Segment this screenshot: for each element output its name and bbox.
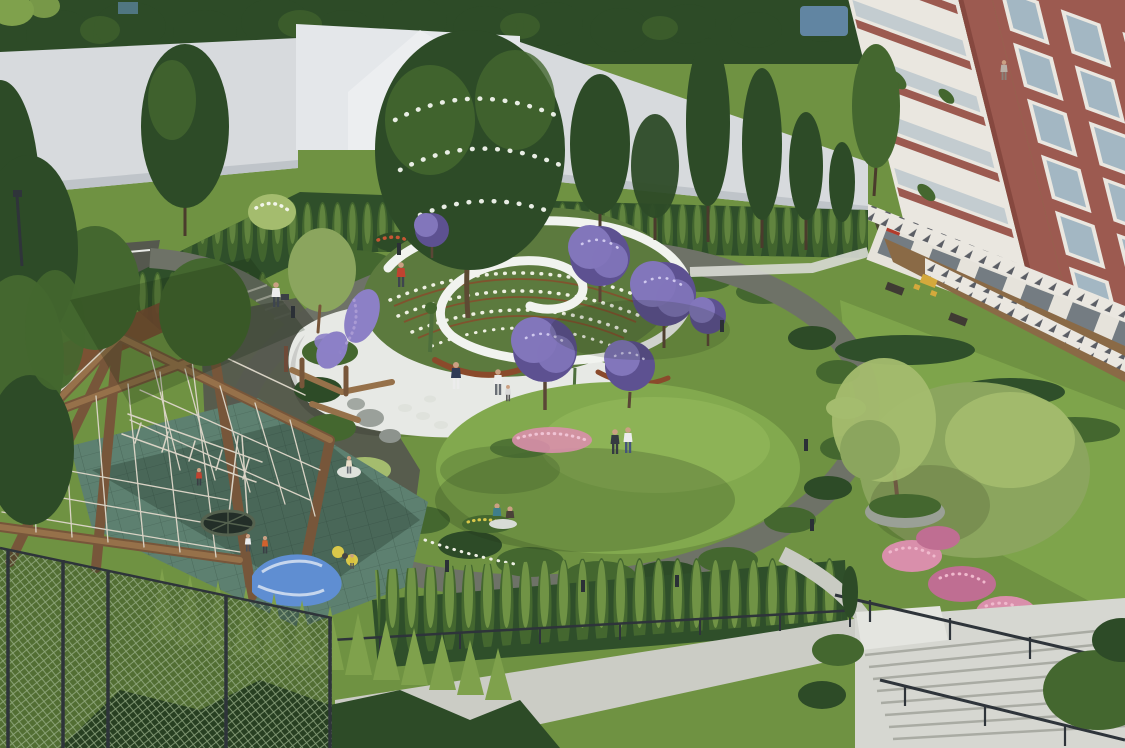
stepping-stone xyxy=(424,396,436,403)
stroller xyxy=(281,294,289,300)
building-base-hedge xyxy=(835,335,975,365)
scene-canvas xyxy=(0,0,1125,748)
blue-detail xyxy=(118,2,138,14)
stepping-stone xyxy=(416,412,430,420)
tree-shadow-center xyxy=(550,300,730,360)
vine-obelisk xyxy=(430,310,432,352)
boulder xyxy=(347,398,365,410)
olive-tree xyxy=(288,228,356,312)
boulder xyxy=(379,429,401,443)
play-pad xyxy=(337,466,361,478)
stepping-stone xyxy=(398,404,412,412)
lawn-mound xyxy=(435,382,800,554)
picnic-blanket xyxy=(489,519,517,529)
stepping-stone xyxy=(434,421,448,429)
pink-flower-bed xyxy=(512,427,592,453)
landscape-rendering xyxy=(0,0,1125,748)
white-shrub xyxy=(248,194,296,230)
cypress xyxy=(842,566,858,618)
blue-canopy xyxy=(800,6,848,36)
